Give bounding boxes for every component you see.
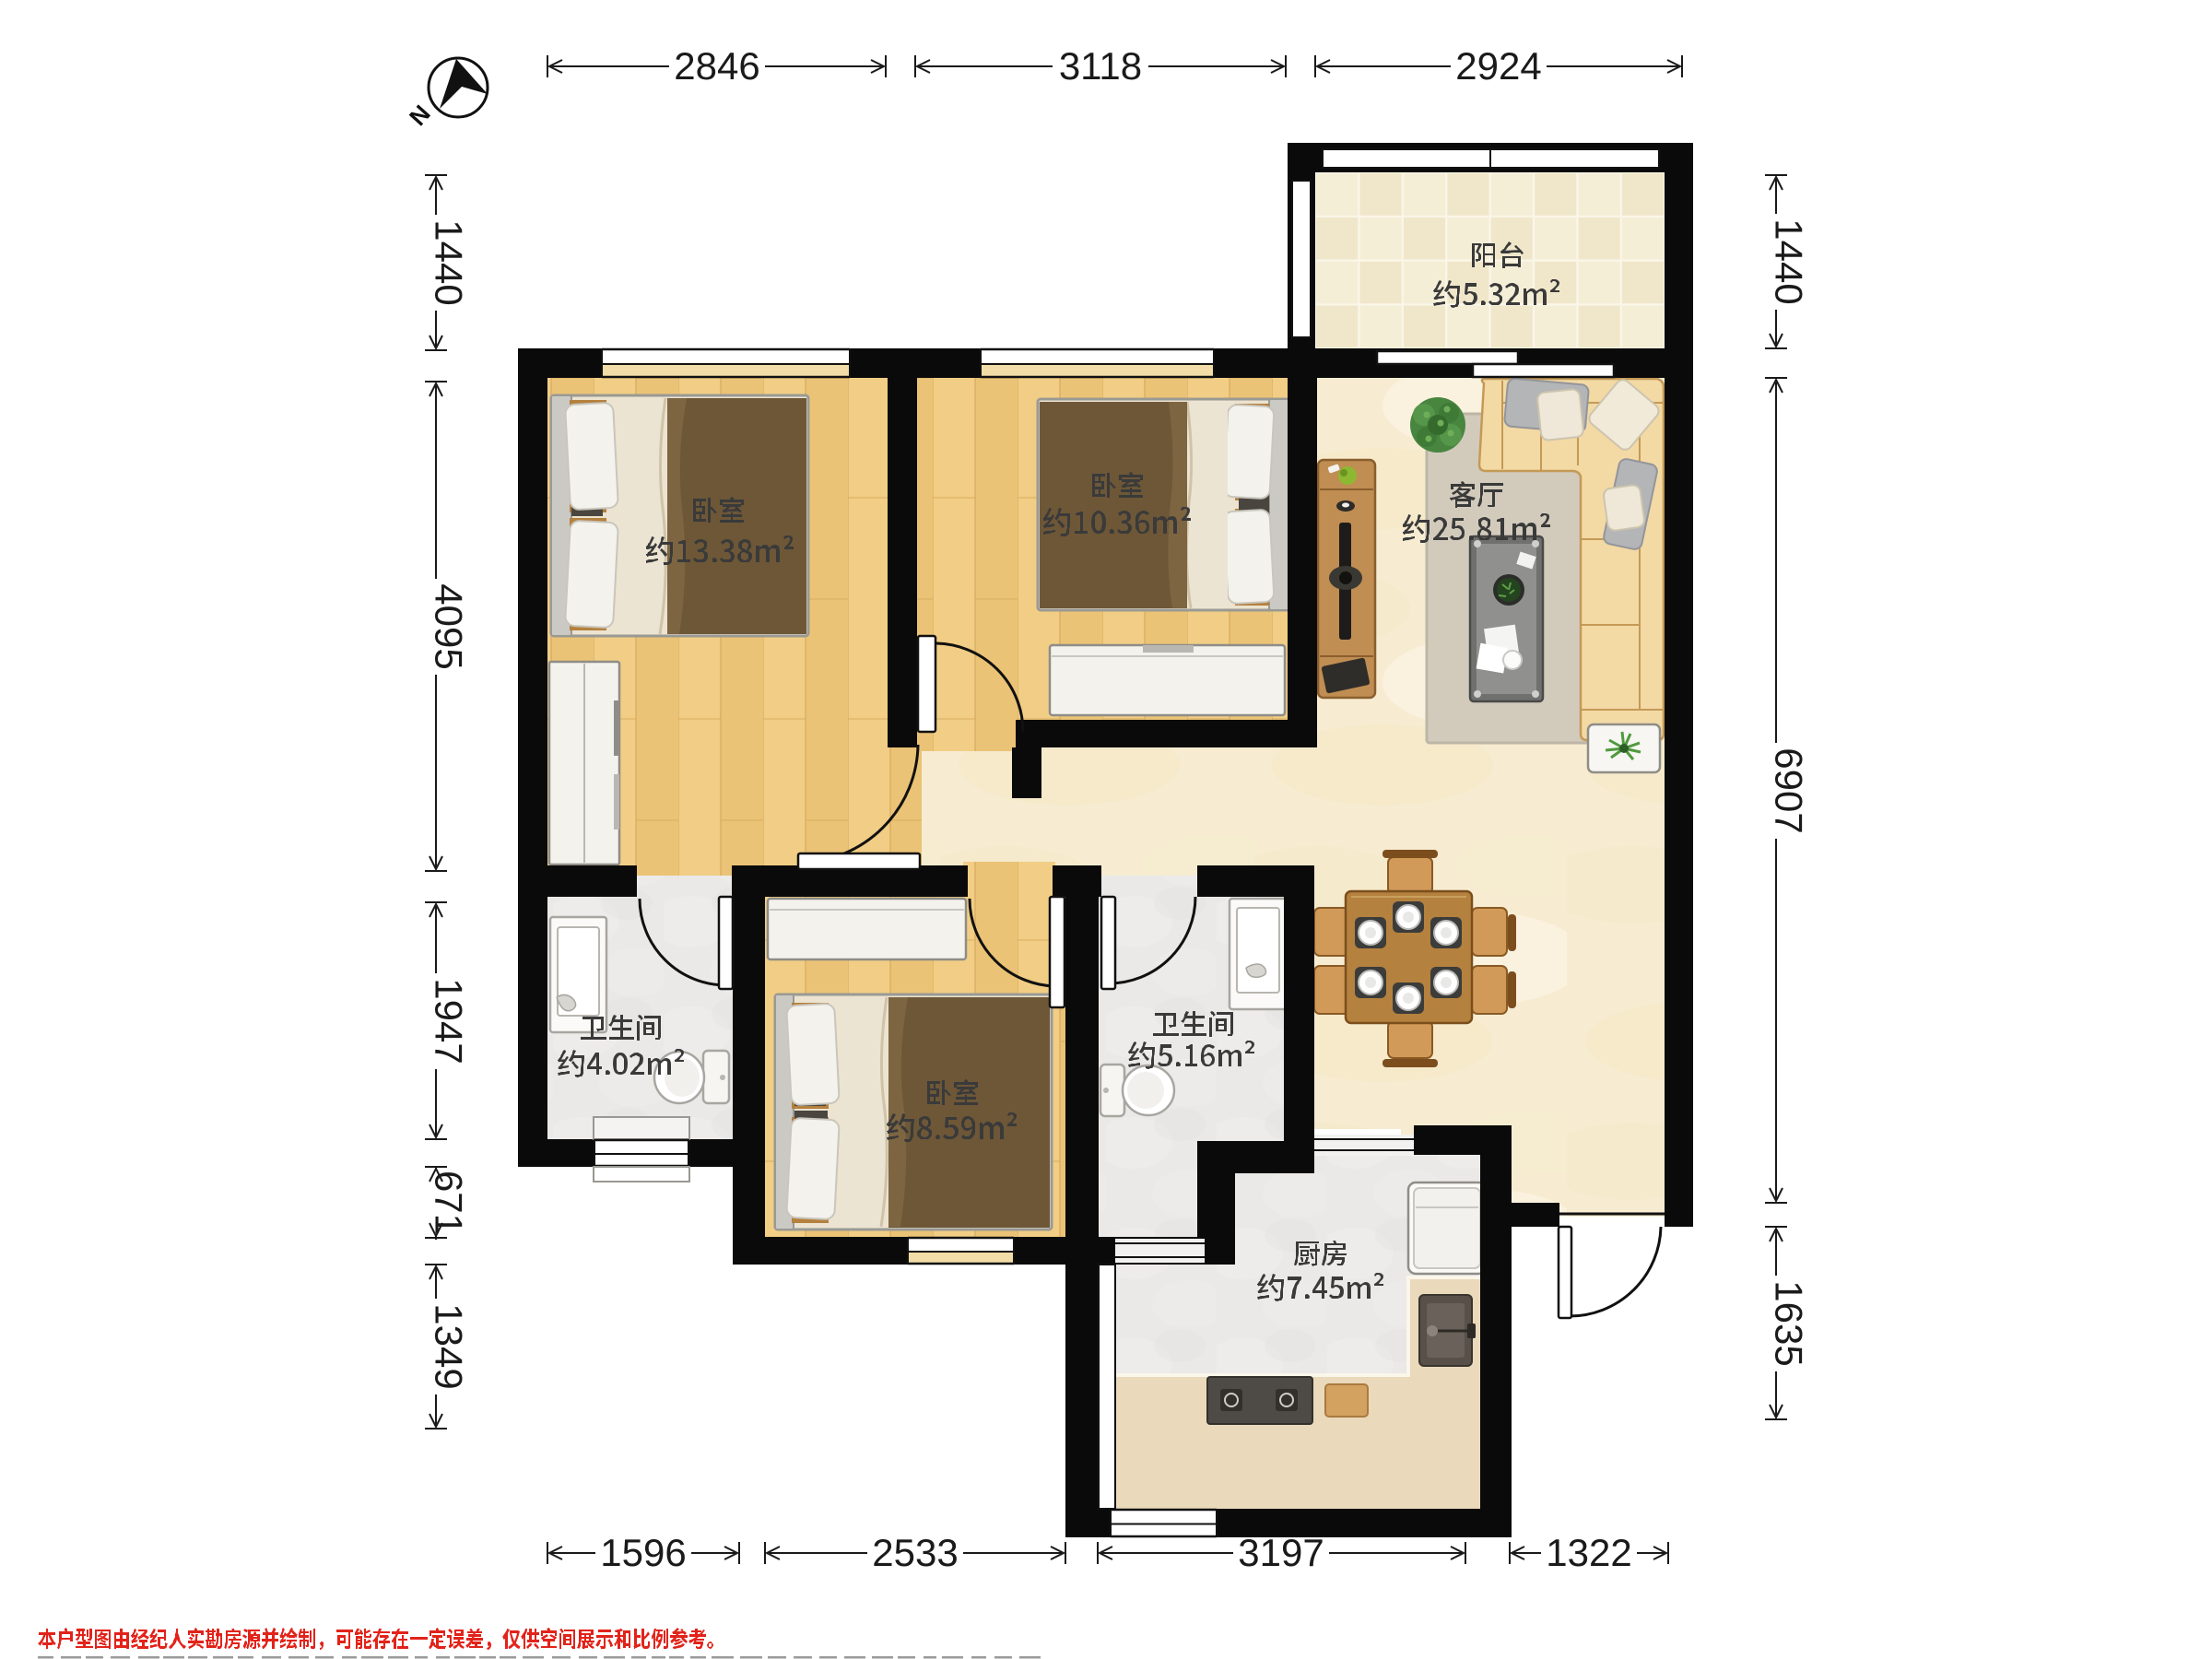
svg-text:4095: 4095 — [428, 583, 471, 669]
svg-text:1349: 1349 — [428, 1303, 471, 1389]
svg-text:3118: 3118 — [1059, 44, 1142, 88]
svg-text:1596: 1596 — [600, 1531, 686, 1574]
svg-text:671: 671 — [428, 1171, 471, 1235]
svg-text:1440: 1440 — [1768, 218, 1811, 304]
svg-text:2846: 2846 — [674, 44, 759, 88]
svg-text:2924: 2924 — [1455, 44, 1541, 88]
svg-text:1440: 1440 — [428, 219, 471, 305]
svg-text:1947: 1947 — [428, 978, 471, 1064]
svg-text:3197: 3197 — [1238, 1531, 1324, 1574]
svg-text:6907: 6907 — [1768, 747, 1811, 833]
svg-text:1322: 1322 — [1546, 1531, 1631, 1574]
svg-text:1635: 1635 — [1768, 1280, 1811, 1366]
svg-text:2533: 2533 — [872, 1531, 958, 1574]
